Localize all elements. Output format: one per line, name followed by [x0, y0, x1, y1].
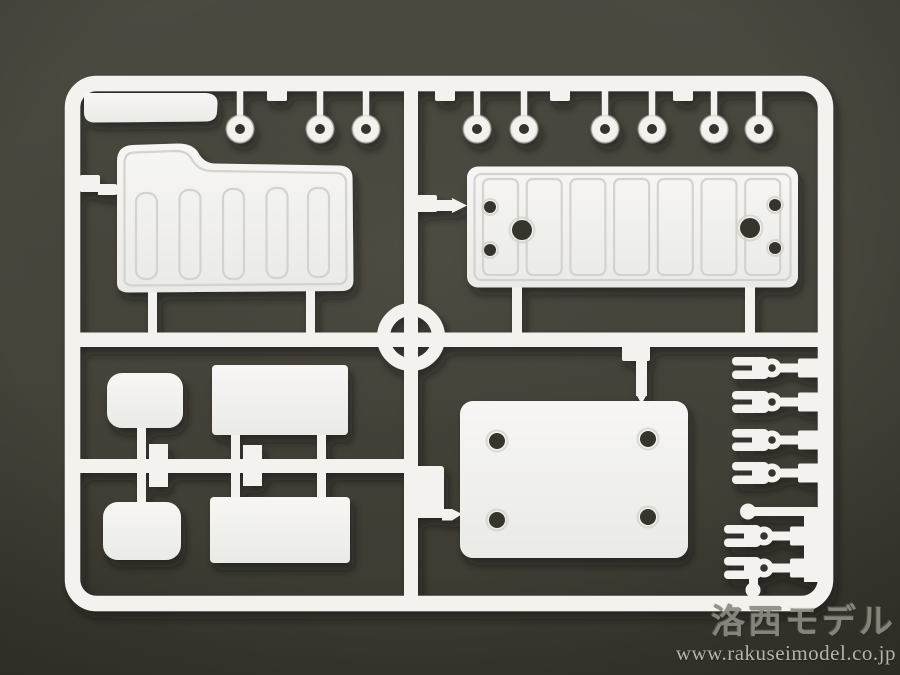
gate-stub	[317, 433, 326, 461]
flat-bar-part	[84, 93, 218, 123]
gate-stub	[137, 471, 146, 504]
fork-connector-runner	[750, 507, 820, 516]
plate-bottom-gate-2	[745, 286, 755, 334]
small-rounded-plate-1	[107, 373, 183, 428]
gate-tab	[243, 471, 262, 486]
rectangular-plate-2	[210, 497, 350, 563]
panel-bottom-gate-1	[148, 290, 157, 335]
small-rounded-plate-2	[103, 502, 181, 560]
gate-tab	[149, 471, 168, 487]
mount-plate-body	[460, 401, 688, 558]
gate-stub	[317, 471, 326, 499]
gate-tab	[149, 444, 168, 461]
fork-connector-knob	[740, 504, 756, 520]
mount-plate-left-gate-block	[415, 466, 444, 518]
mount-plate-top-gate-stem	[636, 358, 647, 396]
gate-stub	[231, 471, 240, 499]
gate-stub	[137, 426, 146, 462]
rail-stub	[267, 84, 287, 101]
runner-vertical-center	[404, 84, 418, 604]
plate-left-gate-tab	[417, 195, 437, 212]
runner-horizontal-main	[78, 333, 820, 348]
plate-bottom-gate-1	[512, 286, 522, 334]
gate-stub	[231, 433, 240, 461]
panel-body	[117, 144, 354, 293]
runner-horizontal-lower-left	[78, 459, 410, 473]
photo-of-model-kit-sprue: { "scene": { "type": "photograph", "subj…	[0, 0, 900, 675]
panel-left-gate-tab	[80, 175, 100, 192]
rail-stub	[550, 84, 570, 101]
panel-bottom-gate-2	[306, 288, 315, 335]
gate-tab	[243, 445, 262, 460]
rectangular-plate-1	[212, 365, 348, 435]
fork-lower-knob	[746, 583, 761, 598]
plate-left-gate-stem	[435, 200, 454, 211]
rail-stub	[673, 84, 693, 101]
rail-stub	[435, 84, 455, 101]
photo-canvas	[0, 0, 900, 675]
